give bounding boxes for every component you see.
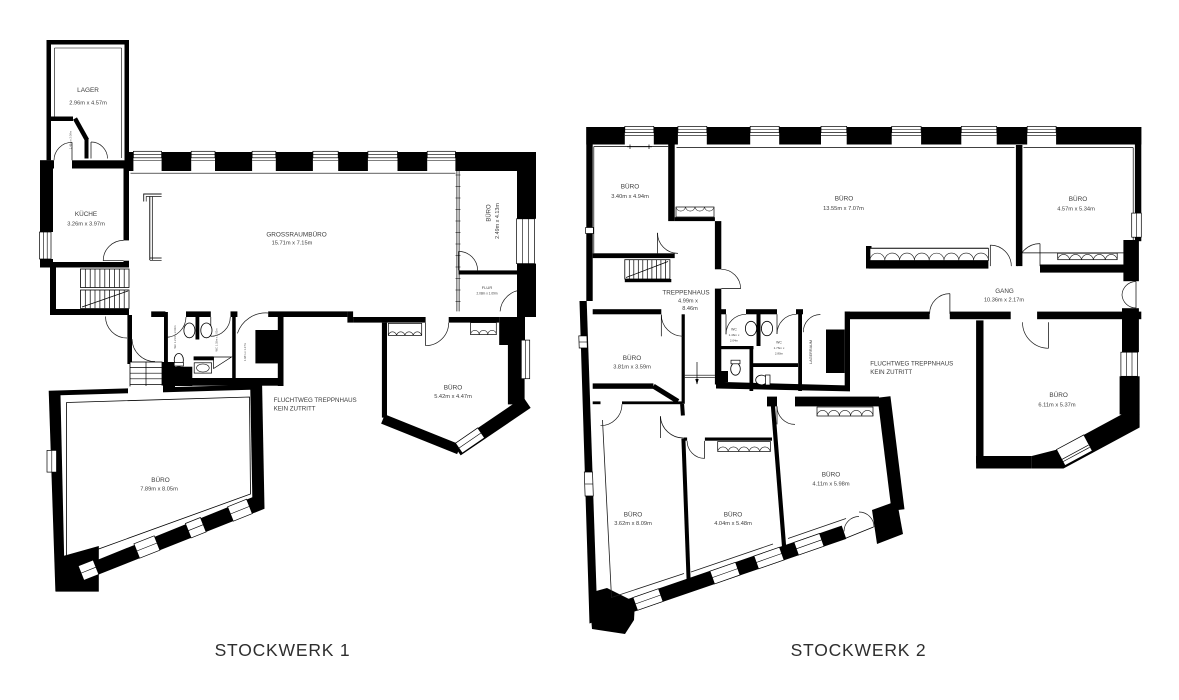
svg-text:BÜRO: BÜRO [1069,195,1087,203]
svg-text:4.57m x 5.34m: 4.57m x 5.34m [1057,207,1095,213]
svg-text:3.81m x 3.59m: 3.81m x 3.59m [613,365,651,371]
svg-text:5.42m x 4.47m: 5.42m x 4.47m [434,394,472,400]
svg-text:KÜCHE: KÜCHE [75,210,97,218]
svg-text:GANG: GANG [995,288,1014,295]
svg-text:13.55m x 7.07m: 13.55m x 7.07m [823,206,864,212]
svg-text:15.71m x 7.15m: 15.71m x 7.15m [272,241,313,247]
svg-text:3.62m x 8.09m: 3.62m x 8.09m [614,521,652,527]
svg-text:3.26m x 3.97m: 3.26m x 3.97m [67,222,105,228]
svg-text:BÜRO: BÜRO [151,476,169,484]
svg-text:WC: WC [731,328,737,332]
svg-text:FLUCHTWEG TREPPNHAUS: FLUCHTWEG TREPPNHAUS [274,397,357,404]
svg-text:LAGER: LAGER [77,87,99,94]
svg-text:1.98m x 1.27m: 1.98m x 1.27m [243,342,247,361]
svg-text:10.36m x 2.17m: 10.36m x 2.17m [984,298,1024,304]
svg-text:BÜRO: BÜRO [621,183,639,191]
svg-text:KEIN ZUTRITT: KEIN ZUTRITT [870,369,912,376]
svg-text:WC 1.21m x 2.02m: WC 1.21m x 2.02m [173,325,177,349]
svg-text:8.46m: 8.46m [682,306,698,312]
svg-text:BÜRO: BÜRO [486,204,493,222]
svg-text:BÜRO: BÜRO [444,384,462,392]
svg-text:1.76m x: 1.76m x [774,346,785,350]
svg-text:WC 1.35m x 2.02m: WC 1.35m x 2.02m [215,328,219,352]
svg-text:STOCKWERK 2: STOCKWERK 2 [791,640,927,660]
svg-text:KEIN ZUTRITT: KEIN ZUTRITT [274,405,316,412]
svg-text:BÜRO: BÜRO [624,511,642,519]
svg-text:BÜRO: BÜRO [822,471,840,479]
svg-text:2.80m: 2.80m [775,351,784,355]
svg-text:4.99m x: 4.99m x [678,299,698,305]
svg-text:2.49m x 4.13m: 2.49m x 4.13m [495,203,501,239]
svg-text:1.46m x: 1.46m x [729,333,740,337]
svg-text:2.96m x 4.57m: 2.96m x 4.57m [69,101,107,107]
svg-text:STOCKWERK 1: STOCKWERK 1 [215,640,351,660]
svg-text:BÜRO: BÜRO [835,195,853,203]
svg-text:4.04m x 5.48m: 4.04m x 5.48m [714,521,752,527]
svg-text:2.04m: 2.04m [730,338,739,342]
svg-text:BÜRO: BÜRO [724,511,742,519]
svg-text:3.40m x 4.94m: 3.40m x 4.94m [611,194,649,200]
svg-text:2.08m x 1.09m: 2.08m x 1.09m [476,292,497,296]
svg-text:BÜRO: BÜRO [1049,391,1067,399]
svg-text:BÜRO: BÜRO [623,354,641,362]
svg-text:LAGERRAUM: LAGERRAUM [809,340,813,364]
svg-text:GROSSRAUMBÜRO: GROSSRAUMBÜRO [266,231,326,239]
svg-text:4.11m x 5.98m: 4.11m x 5.98m [812,482,849,488]
svg-text:7.89m x 8.05m: 7.89m x 8.05m [140,487,178,493]
svg-text:TREPPENHAUS: TREPPENHAUS [662,290,709,297]
svg-text:FLUCHTWEG TREPPNHAUS: FLUCHTWEG TREPPNHAUS [870,361,953,368]
svg-text:WC: WC [776,341,782,345]
svg-text:6.11m x 5.37m: 6.11m x 5.37m [1038,403,1075,409]
svg-text:FLUR: FLUR [482,285,493,290]
